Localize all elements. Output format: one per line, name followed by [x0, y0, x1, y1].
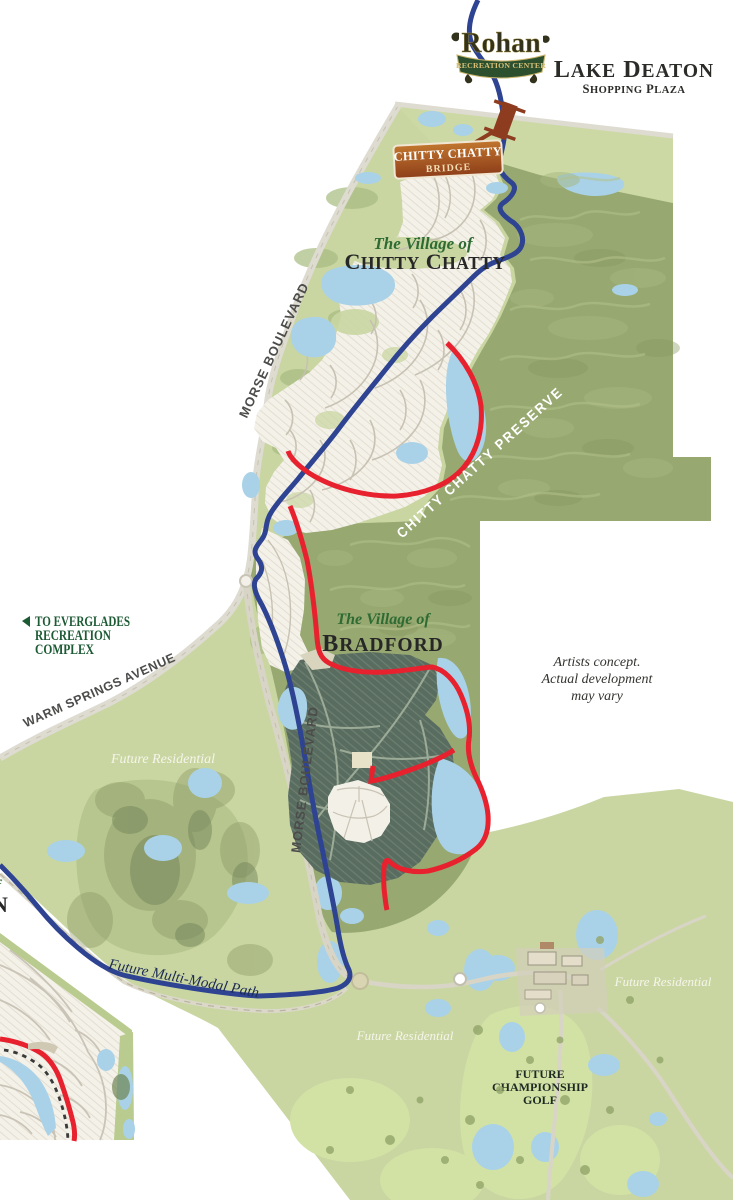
svg-text:FUTURE: FUTURE: [515, 1067, 564, 1081]
svg-text:Future Residential: Future Residential: [110, 752, 215, 767]
svg-text:LAKE DEATON: LAKE DEATON: [554, 57, 714, 83]
svg-text:Artists concept.: Artists concept.: [552, 655, 640, 670]
svg-text:SHOPPING PLAZA: SHOPPING PLAZA: [583, 82, 686, 96]
svg-text:Future Residential: Future Residential: [614, 974, 712, 989]
svg-text:Actual development: Actual development: [541, 672, 654, 687]
svg-text:BRADFORD: BRADFORD: [322, 631, 444, 657]
svg-text:GOLF: GOLF: [523, 1093, 557, 1107]
svg-text:may vary: may vary: [571, 689, 623, 704]
svg-text:The Village of: The Village of: [336, 611, 431, 628]
svg-text:Rohan: Rohan: [461, 28, 541, 59]
svg-text:N: N: [0, 892, 8, 917]
svg-text:RECREATION CENTER: RECREATION CENTER: [456, 61, 546, 70]
svg-text:COMPLEX: COMPLEX: [35, 642, 94, 658]
svg-text:CHITTY CHATTY: CHITTY CHATTY: [344, 249, 505, 274]
svg-text:CHAMPIONSHIP: CHAMPIONSHIP: [492, 1080, 588, 1094]
svg-text:Future Residential: Future Residential: [356, 1028, 454, 1043]
